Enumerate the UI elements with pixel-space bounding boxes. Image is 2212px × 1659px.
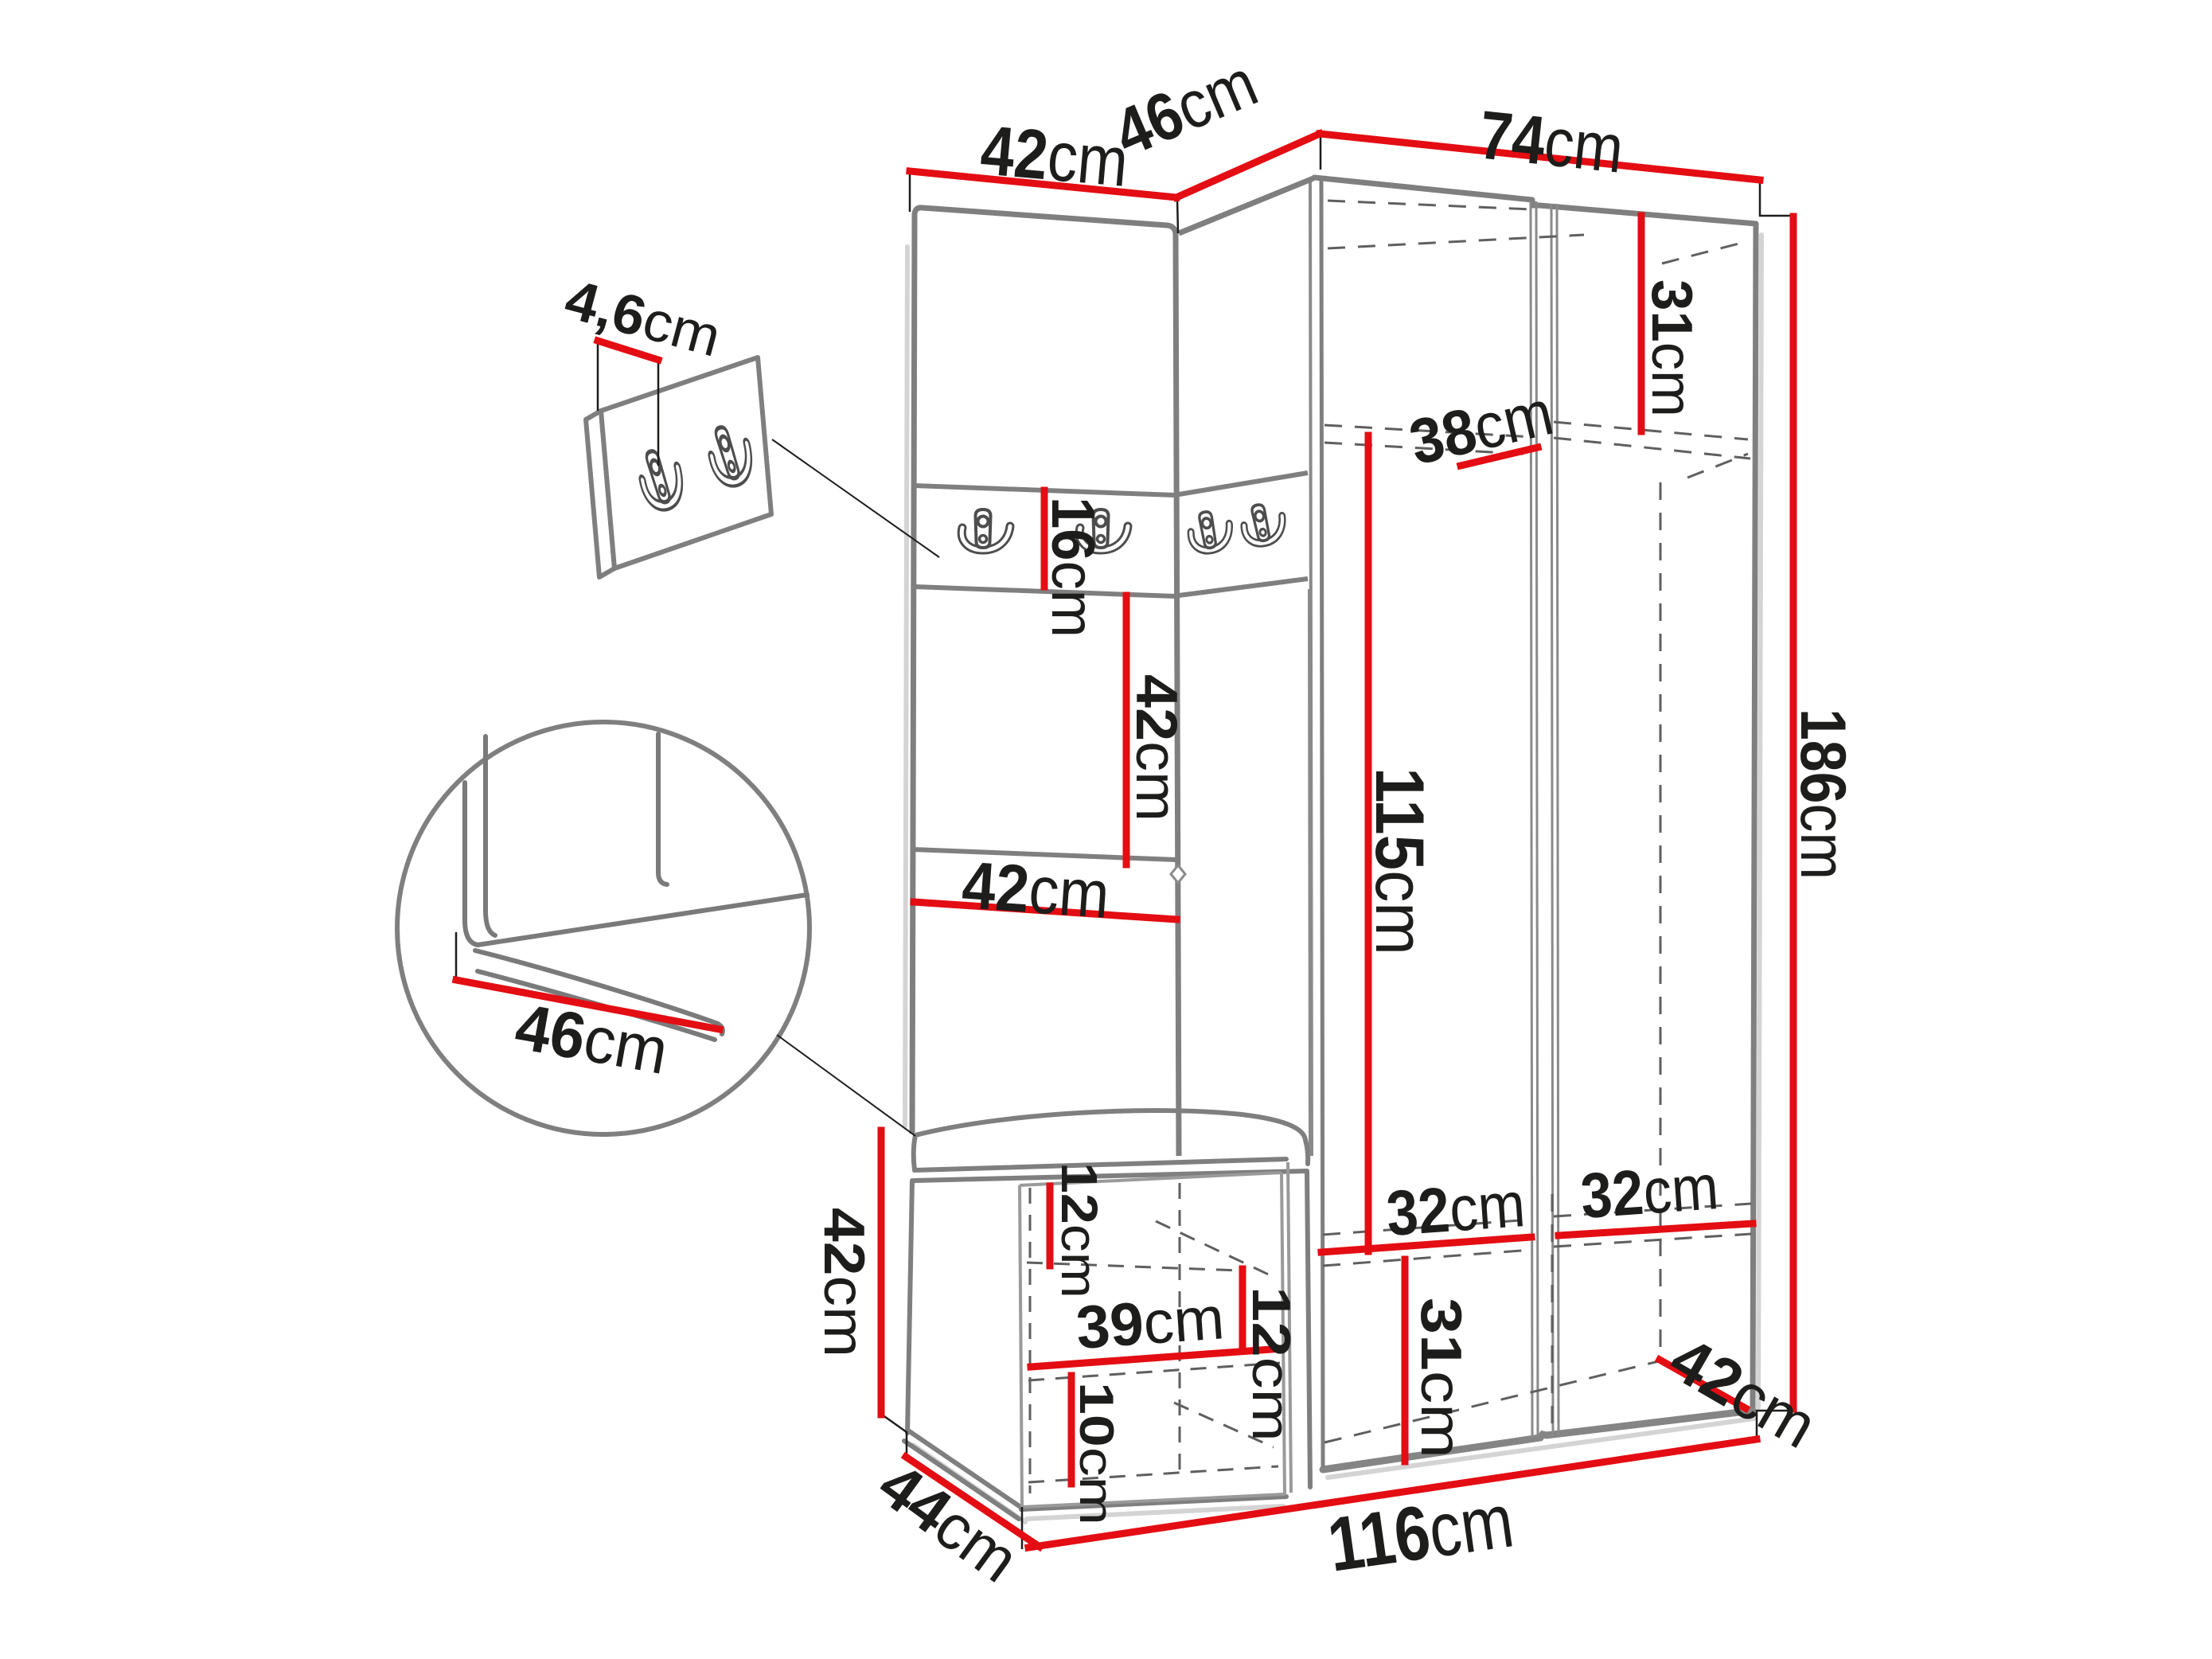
svg-text:10cm: 10cm — [1070, 1382, 1123, 1525]
svg-text:39cm: 39cm — [1074, 1284, 1226, 1362]
svg-text:12cm: 12cm — [1241, 1286, 1301, 1442]
svg-text:42cm: 42cm — [960, 847, 1112, 932]
svg-text:115cm: 115cm — [1361, 767, 1438, 955]
svg-text:32cm: 32cm — [1384, 1169, 1527, 1249]
svg-text:42cm: 42cm — [977, 110, 1131, 201]
svg-text:31cm: 31cm — [1640, 279, 1703, 417]
svg-text:74cm: 74cm — [1476, 96, 1627, 187]
svg-text:16cm: 16cm — [1039, 497, 1106, 638]
svg-text:12cm: 12cm — [1051, 1162, 1108, 1298]
svg-text:42cm: 42cm — [1124, 674, 1188, 822]
svg-text:32cm: 32cm — [1578, 1151, 1721, 1232]
svg-text:31cm: 31cm — [1409, 1298, 1473, 1458]
svg-text:42cm: 42cm — [812, 1208, 876, 1357]
svg-text:186cm: 186cm — [1787, 708, 1859, 880]
